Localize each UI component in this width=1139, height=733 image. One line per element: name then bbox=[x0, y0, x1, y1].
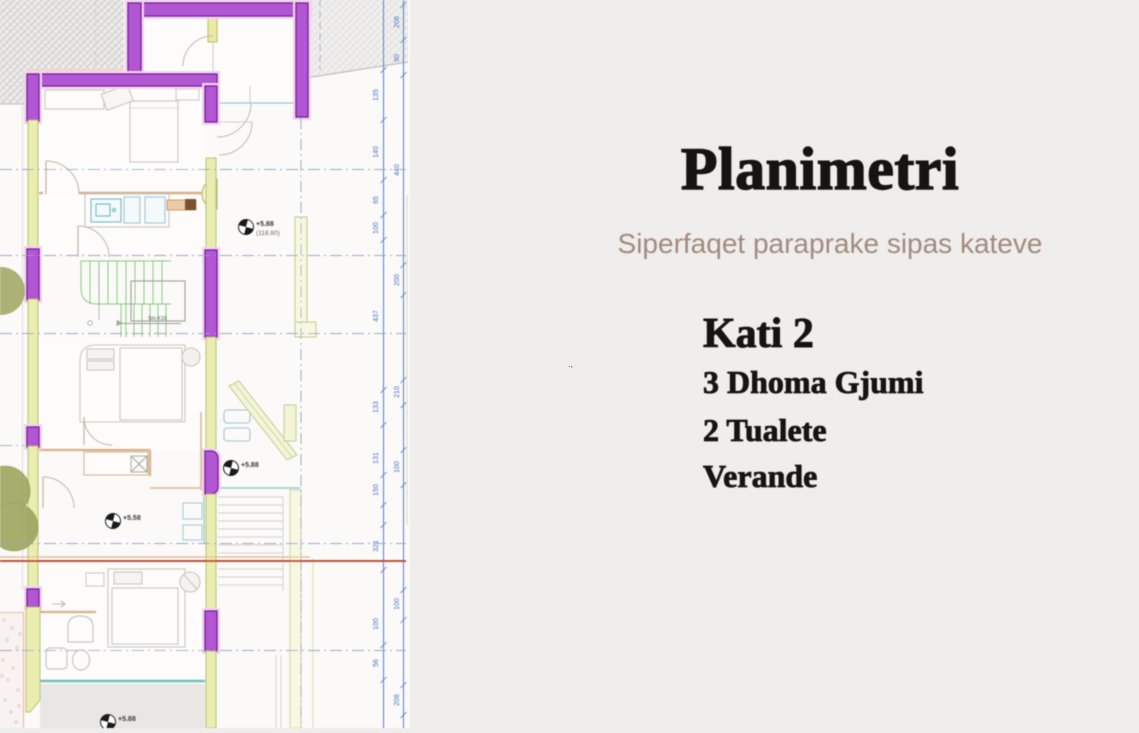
svg-text:+5.88: +5.88 bbox=[256, 221, 274, 228]
svg-text:437: 437 bbox=[373, 310, 380, 322]
svg-text:131: 131 bbox=[373, 452, 380, 464]
svg-text:100: 100 bbox=[373, 222, 380, 234]
svg-text:133: 133 bbox=[373, 401, 380, 413]
svg-text:+5.58: +5.58 bbox=[123, 515, 141, 522]
svg-text:+5.88: +5.88 bbox=[118, 716, 136, 723]
svg-text:90: 90 bbox=[394, 54, 401, 62]
svg-text:210: 210 bbox=[394, 386, 401, 398]
svg-text:100: 100 bbox=[373, 618, 380, 630]
svg-text:+5.88: +5.88 bbox=[241, 462, 259, 469]
svg-text:140: 140 bbox=[373, 146, 380, 158]
svg-text:135: 135 bbox=[373, 89, 380, 101]
svg-text:150: 150 bbox=[373, 484, 380, 496]
svg-text:200: 200 bbox=[394, 274, 401, 286]
svg-text:206: 206 bbox=[394, 16, 401, 28]
svg-text:65: 65 bbox=[373, 196, 380, 204]
svg-text:206: 206 bbox=[394, 694, 401, 706]
svg-text:100: 100 bbox=[394, 461, 401, 473]
svg-text:100: 100 bbox=[394, 598, 401, 610]
svg-text:(118.80): (118.80) bbox=[256, 230, 280, 237]
svg-text:56: 56 bbox=[373, 659, 380, 667]
svg-text:SH.K16: SH.K16 bbox=[148, 316, 167, 322]
svg-text:321: 321 bbox=[373, 540, 380, 552]
